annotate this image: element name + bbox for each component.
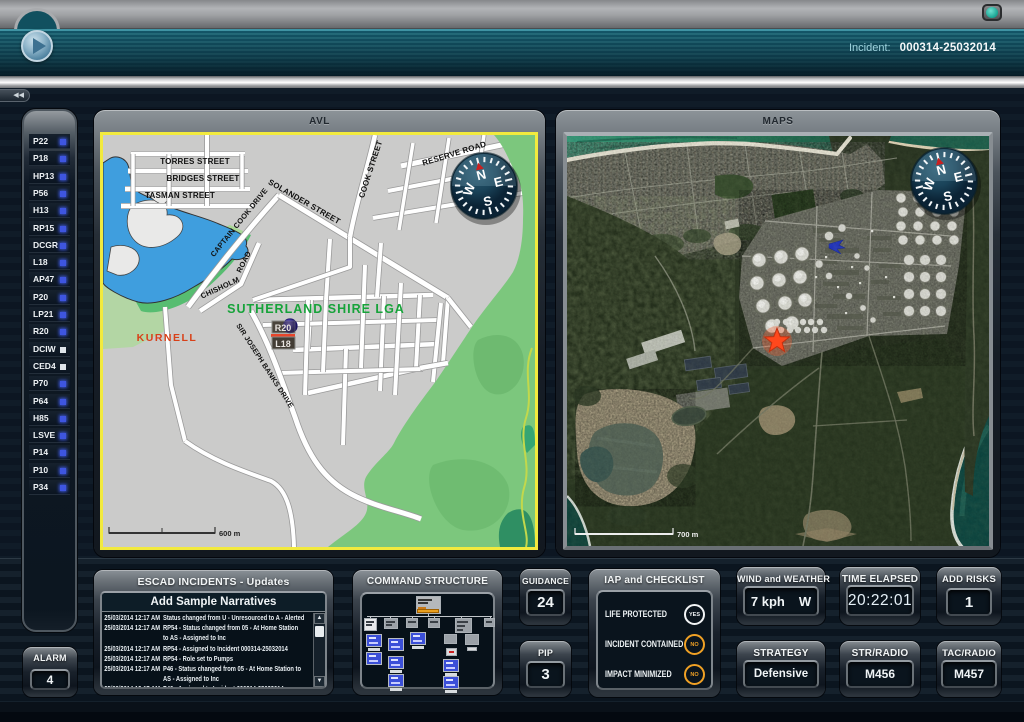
svg-text:KURNELL: KURNELL (137, 332, 198, 344)
svg-text:TORRES STREET: TORRES STREET (160, 157, 230, 166)
svg-text:700 m: 700 m (677, 530, 699, 539)
svg-text:600 m: 600 m (219, 529, 241, 538)
svg-text:L18: L18 (275, 339, 291, 349)
svg-text:TASMAN STREET: TASMAN STREET (145, 191, 215, 200)
svg-text:R20: R20 (275, 323, 292, 333)
svg-text:SUTHERLAND SHIRE LGA: SUTHERLAND SHIRE LGA (227, 302, 405, 316)
svg-text:BRIDGES STREET: BRIDGES STREET (166, 174, 239, 183)
